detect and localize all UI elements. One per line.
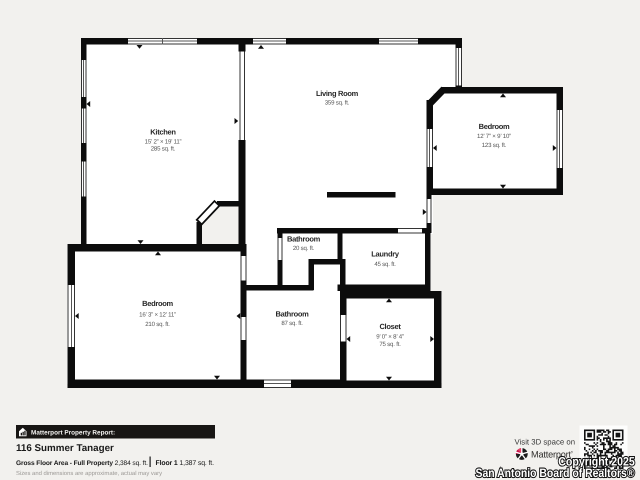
svg-text:16’ 3” × 12’ 11”: 16’ 3” × 12’ 11”: [139, 312, 176, 319]
svg-text:Laundry: Laundry: [371, 250, 400, 259]
svg-text:Bathroom: Bathroom: [287, 235, 321, 244]
svg-text:Bathroom: Bathroom: [275, 309, 309, 318]
svg-text:Matterport Property Report:: Matterport Property Report:: [31, 430, 115, 437]
svg-text:123 sq. ft.: 123 sq. ft.: [482, 142, 507, 149]
svg-text:15’ 2” × 19’ 11”: 15’ 2” × 19’ 11”: [145, 139, 182, 146]
svg-text:285 sq. ft.: 285 sq. ft.: [151, 146, 176, 153]
svg-text:Bedroom: Bedroom: [479, 122, 510, 131]
svg-text:San Antonio Board of Realtors®: San Antonio Board of Realtors®: [476, 466, 635, 480]
svg-text:210 sq. ft.: 210 sq. ft.: [145, 321, 170, 328]
svg-text:116 Summer Tanager: 116 Summer Tanager: [16, 443, 114, 454]
svg-text:75 sq. ft.: 75 sq. ft.: [379, 341, 401, 348]
svg-text:20 sq. ft.: 20 sq. ft.: [293, 245, 315, 252]
svg-text:Gross Floor Area - Full Proper: Gross Floor Area - Full Property 2,384 s…: [16, 460, 148, 467]
svg-text:87 sq. ft.: 87 sq. ft.: [281, 320, 303, 327]
svg-text:12’ 7” × 9’ 10”: 12’ 7” × 9’ 10”: [477, 133, 511, 140]
svg-text:Kitchen: Kitchen: [150, 128, 176, 137]
svg-text:Sizes and dimensions are appro: Sizes and dimensions are approximate, ac…: [16, 470, 162, 477]
svg-text:Living Room: Living Room: [316, 89, 359, 98]
svg-text:Bedroom: Bedroom: [142, 299, 173, 308]
svg-text:45 sq. ft.: 45 sq. ft.: [374, 261, 396, 268]
svg-text:9’ 0” × 8’ 4”: 9’ 0” × 8’ 4”: [376, 334, 404, 341]
svg-text:Visit 3D space on: Visit 3D space on: [515, 437, 576, 446]
svg-text:359 sq. ft.: 359 sq. ft.: [325, 100, 350, 107]
svg-text:Floor 1 1,387 sq. ft.: Floor 1 1,387 sq. ft.: [156, 460, 215, 467]
svg-text:Closet: Closet: [379, 322, 401, 331]
